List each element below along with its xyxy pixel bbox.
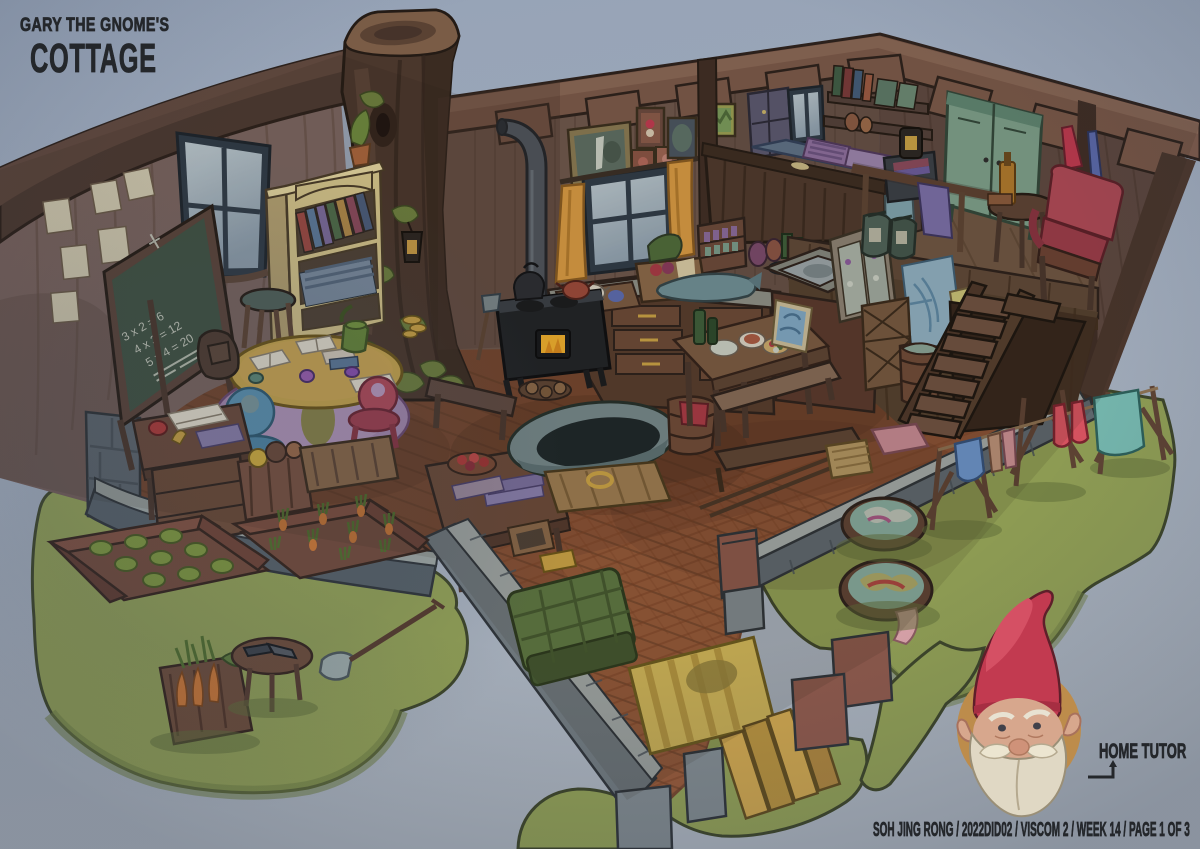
- svg-text:SOH JING RONG / 2022DID02 / VI: SOH JING RONG / 2022DID02 / VISCOM 2 / W…: [873, 820, 1190, 842]
- svg-text:HOME TUTOR: HOME TUTOR: [1099, 739, 1187, 763]
- svg-text:GARY THE GNOME'S: GARY THE GNOME'S: [20, 14, 169, 35]
- svg-text:COTTAGE: COTTAGE: [30, 36, 157, 82]
